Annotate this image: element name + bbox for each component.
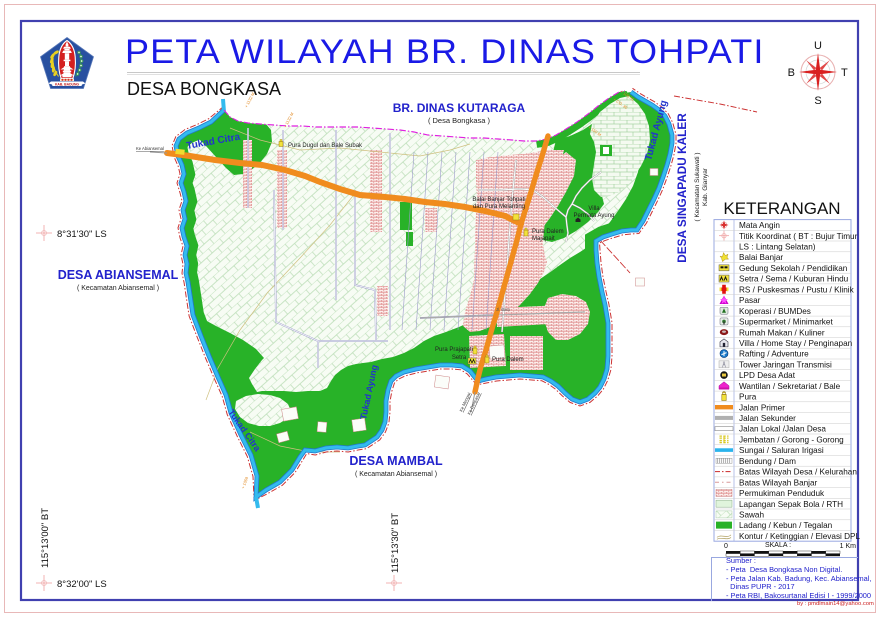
svg-text:Pasar: Pasar — [739, 296, 761, 305]
svg-text:115°13'00" BT: 115°13'00" BT — [40, 508, 51, 568]
svg-text:Tower Jaringan Transmisi: Tower Jaringan Transmisi — [739, 360, 832, 369]
svg-text:Ke Abiansemal: Ke Abiansemal — [136, 146, 164, 151]
svg-text:RS / Puskesmas / Pustu / Klini: RS / Puskesmas / Pustu / Klinik — [739, 285, 855, 294]
svg-text:SKALA :: SKALA : — [765, 542, 791, 549]
svg-text:+ 1059: + 1059 — [240, 475, 249, 489]
svg-text:DESA ABIANSEMAL: DESA ABIANSEMAL — [58, 268, 179, 282]
svg-text:B: B — [788, 67, 795, 79]
svg-text:Setra: Setra — [452, 355, 467, 361]
svg-text:KAB. BADUNG: KAB. BADUNG — [55, 82, 79, 86]
svg-text:Rumah Makan / Kuliner: Rumah Makan / Kuliner — [739, 328, 825, 337]
svg-text:Jl. Batu: Jl. Batu — [496, 307, 511, 312]
svg-text:Koperasi / BUMDes: Koperasi / BUMDes — [739, 307, 811, 316]
svg-text:Pura: Pura — [739, 393, 757, 402]
svg-text:Mata Angin: Mata Angin — [739, 221, 780, 230]
svg-text:Jalan Lokal /Jalan Desa: Jalan Lokal /Jalan Desa — [739, 425, 826, 434]
svg-text:115°13'30" BT: 115°13'30" BT — [390, 513, 401, 573]
svg-text:Villa: Villa — [588, 206, 600, 212]
svg-text:DESA MAMBAL: DESA MAMBAL — [349, 454, 443, 468]
svg-text:Jembatan / Gorong - Gorong: Jembatan / Gorong - Gorong — [739, 436, 844, 445]
svg-text:dan Pura Melanting: dan Pura Melanting — [473, 204, 525, 210]
svg-text:( Kecamatan Abiansemal ): ( Kecamatan Abiansemal ) — [77, 285, 159, 292]
svg-text:Pura Dalem: Pura Dalem — [492, 357, 524, 363]
svg-text:Ladang / Kebun / Tegalan: Ladang / Kebun / Tegalan — [739, 521, 833, 530]
svg-text:Setra / Sema / Kuburan Hindu: Setra / Sema / Kuburan Hindu — [739, 275, 849, 284]
svg-text:Villa / Home Stay / Penginapan: Villa / Home Stay / Penginapan — [739, 339, 853, 348]
svg-text:T: T — [841, 67, 848, 79]
svg-text:Supermarket / Minimarket: Supermarket / Minimarket — [739, 318, 833, 327]
svg-text:8°32'00" LS: 8°32'00" LS — [57, 579, 107, 590]
svg-text:Majapait: Majapait — [532, 236, 555, 242]
svg-text:Lapangan Sepak Bola / RTH: Lapangan Sepak Bola / RTH — [739, 500, 843, 509]
svg-text:Titik Koordinat ( BT : Bujur T: Titik Koordinat ( BT : Bujur Timur ; — [739, 232, 860, 241]
svg-text:Pura Dalem: Pura Dalem — [532, 229, 564, 235]
svg-text:Permata Ayung: Permata Ayung — [574, 213, 615, 219]
svg-text:Gedung Sekolah / Pendidikan: Gedung Sekolah / Pendidikan — [739, 264, 848, 273]
svg-text:Balai Banjar: Balai Banjar — [739, 253, 783, 262]
svg-text:LPD Desa Adat: LPD Desa Adat — [739, 371, 796, 380]
svg-text:Jalan Sekunder: Jalan Sekunder — [739, 414, 796, 423]
svg-text:Permukiman Penduduk: Permukiman Penduduk — [739, 489, 825, 498]
svg-text:LS : Lintang Selatan): LS : Lintang Selatan) — [739, 243, 816, 252]
svg-text:Rafting / Adventure: Rafting / Adventure — [739, 350, 809, 359]
svg-text:Sungai / Saluran Irigasi: Sungai / Saluran Irigasi — [739, 446, 824, 455]
svg-text:U: U — [814, 40, 822, 52]
svg-text:Balai Banjar Tohpati: Balai Banjar Tohpati — [472, 197, 525, 203]
svg-text:DESA SINGAPADU KALER: DESA SINGAPADU KALER — [675, 113, 689, 263]
svg-text:S: S — [814, 95, 821, 107]
svg-text:KETERANGAN: KETERANGAN — [723, 199, 840, 218]
svg-text:Sawah: Sawah — [739, 511, 764, 520]
svg-text:( Desa Bongkasa ): ( Desa Bongkasa ) — [428, 116, 491, 125]
svg-text:Jalan Primer: Jalan Primer — [739, 403, 785, 412]
svg-text:8°31'30" LS: 8°31'30" LS — [57, 229, 107, 240]
svg-text:BR. DINAS KUTARAGA: BR. DINAS KUTARAGA — [393, 101, 526, 115]
svg-text:Pura Dugul dan Bale Subak: Pura Dugul dan Bale Subak — [288, 143, 363, 149]
svg-text:Batas Wilayah Desa / Kelurahan: Batas Wilayah Desa / Kelurahan — [739, 468, 857, 477]
svg-text:Batas Wilayah Banjar: Batas Wilayah Banjar — [739, 478, 818, 487]
svg-text:1 Km: 1 Km — [840, 543, 857, 550]
svg-text:Pura Prajapati: Pura Prajapati — [435, 347, 473, 353]
svg-text:Wantilan / Sekretariat / Bale: Wantilan / Sekretariat / Bale — [739, 382, 841, 391]
svg-text:Bendung / Dam: Bendung / Dam — [739, 457, 796, 466]
svg-text:0: 0 — [724, 543, 728, 550]
svg-text:( Kecamatan Abiansemal ): ( Kecamatan Abiansemal ) — [355, 471, 437, 478]
